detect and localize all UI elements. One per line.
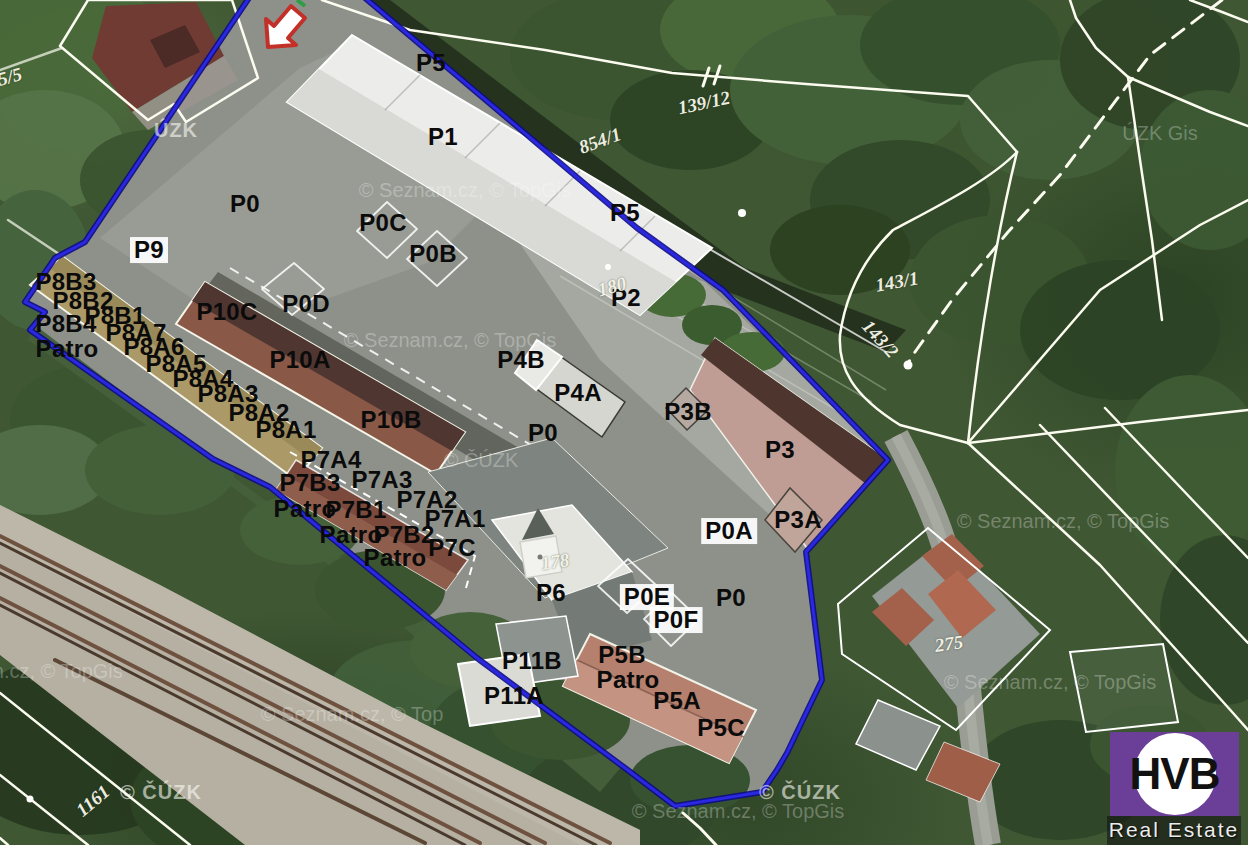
building-p11a (458, 654, 540, 726)
east-parcel-outline (1070, 644, 1178, 732)
hvb-logo-square: HVB (1110, 732, 1239, 816)
aerial-map: P5P1P0P9P0CP0BP5P2P0DP10CP10AP10BP8B3P8B… (0, 0, 1248, 845)
hvb-logo-name: Real Estate (1107, 816, 1241, 845)
hvb-logo: HVB Real Estate (1107, 732, 1241, 845)
map-graphics (0, 0, 1248, 845)
hvb-logo-circle: HVB (1134, 733, 1216, 815)
house-275 (838, 528, 1050, 730)
hvb-logo-abbr: HVB (1130, 749, 1220, 799)
